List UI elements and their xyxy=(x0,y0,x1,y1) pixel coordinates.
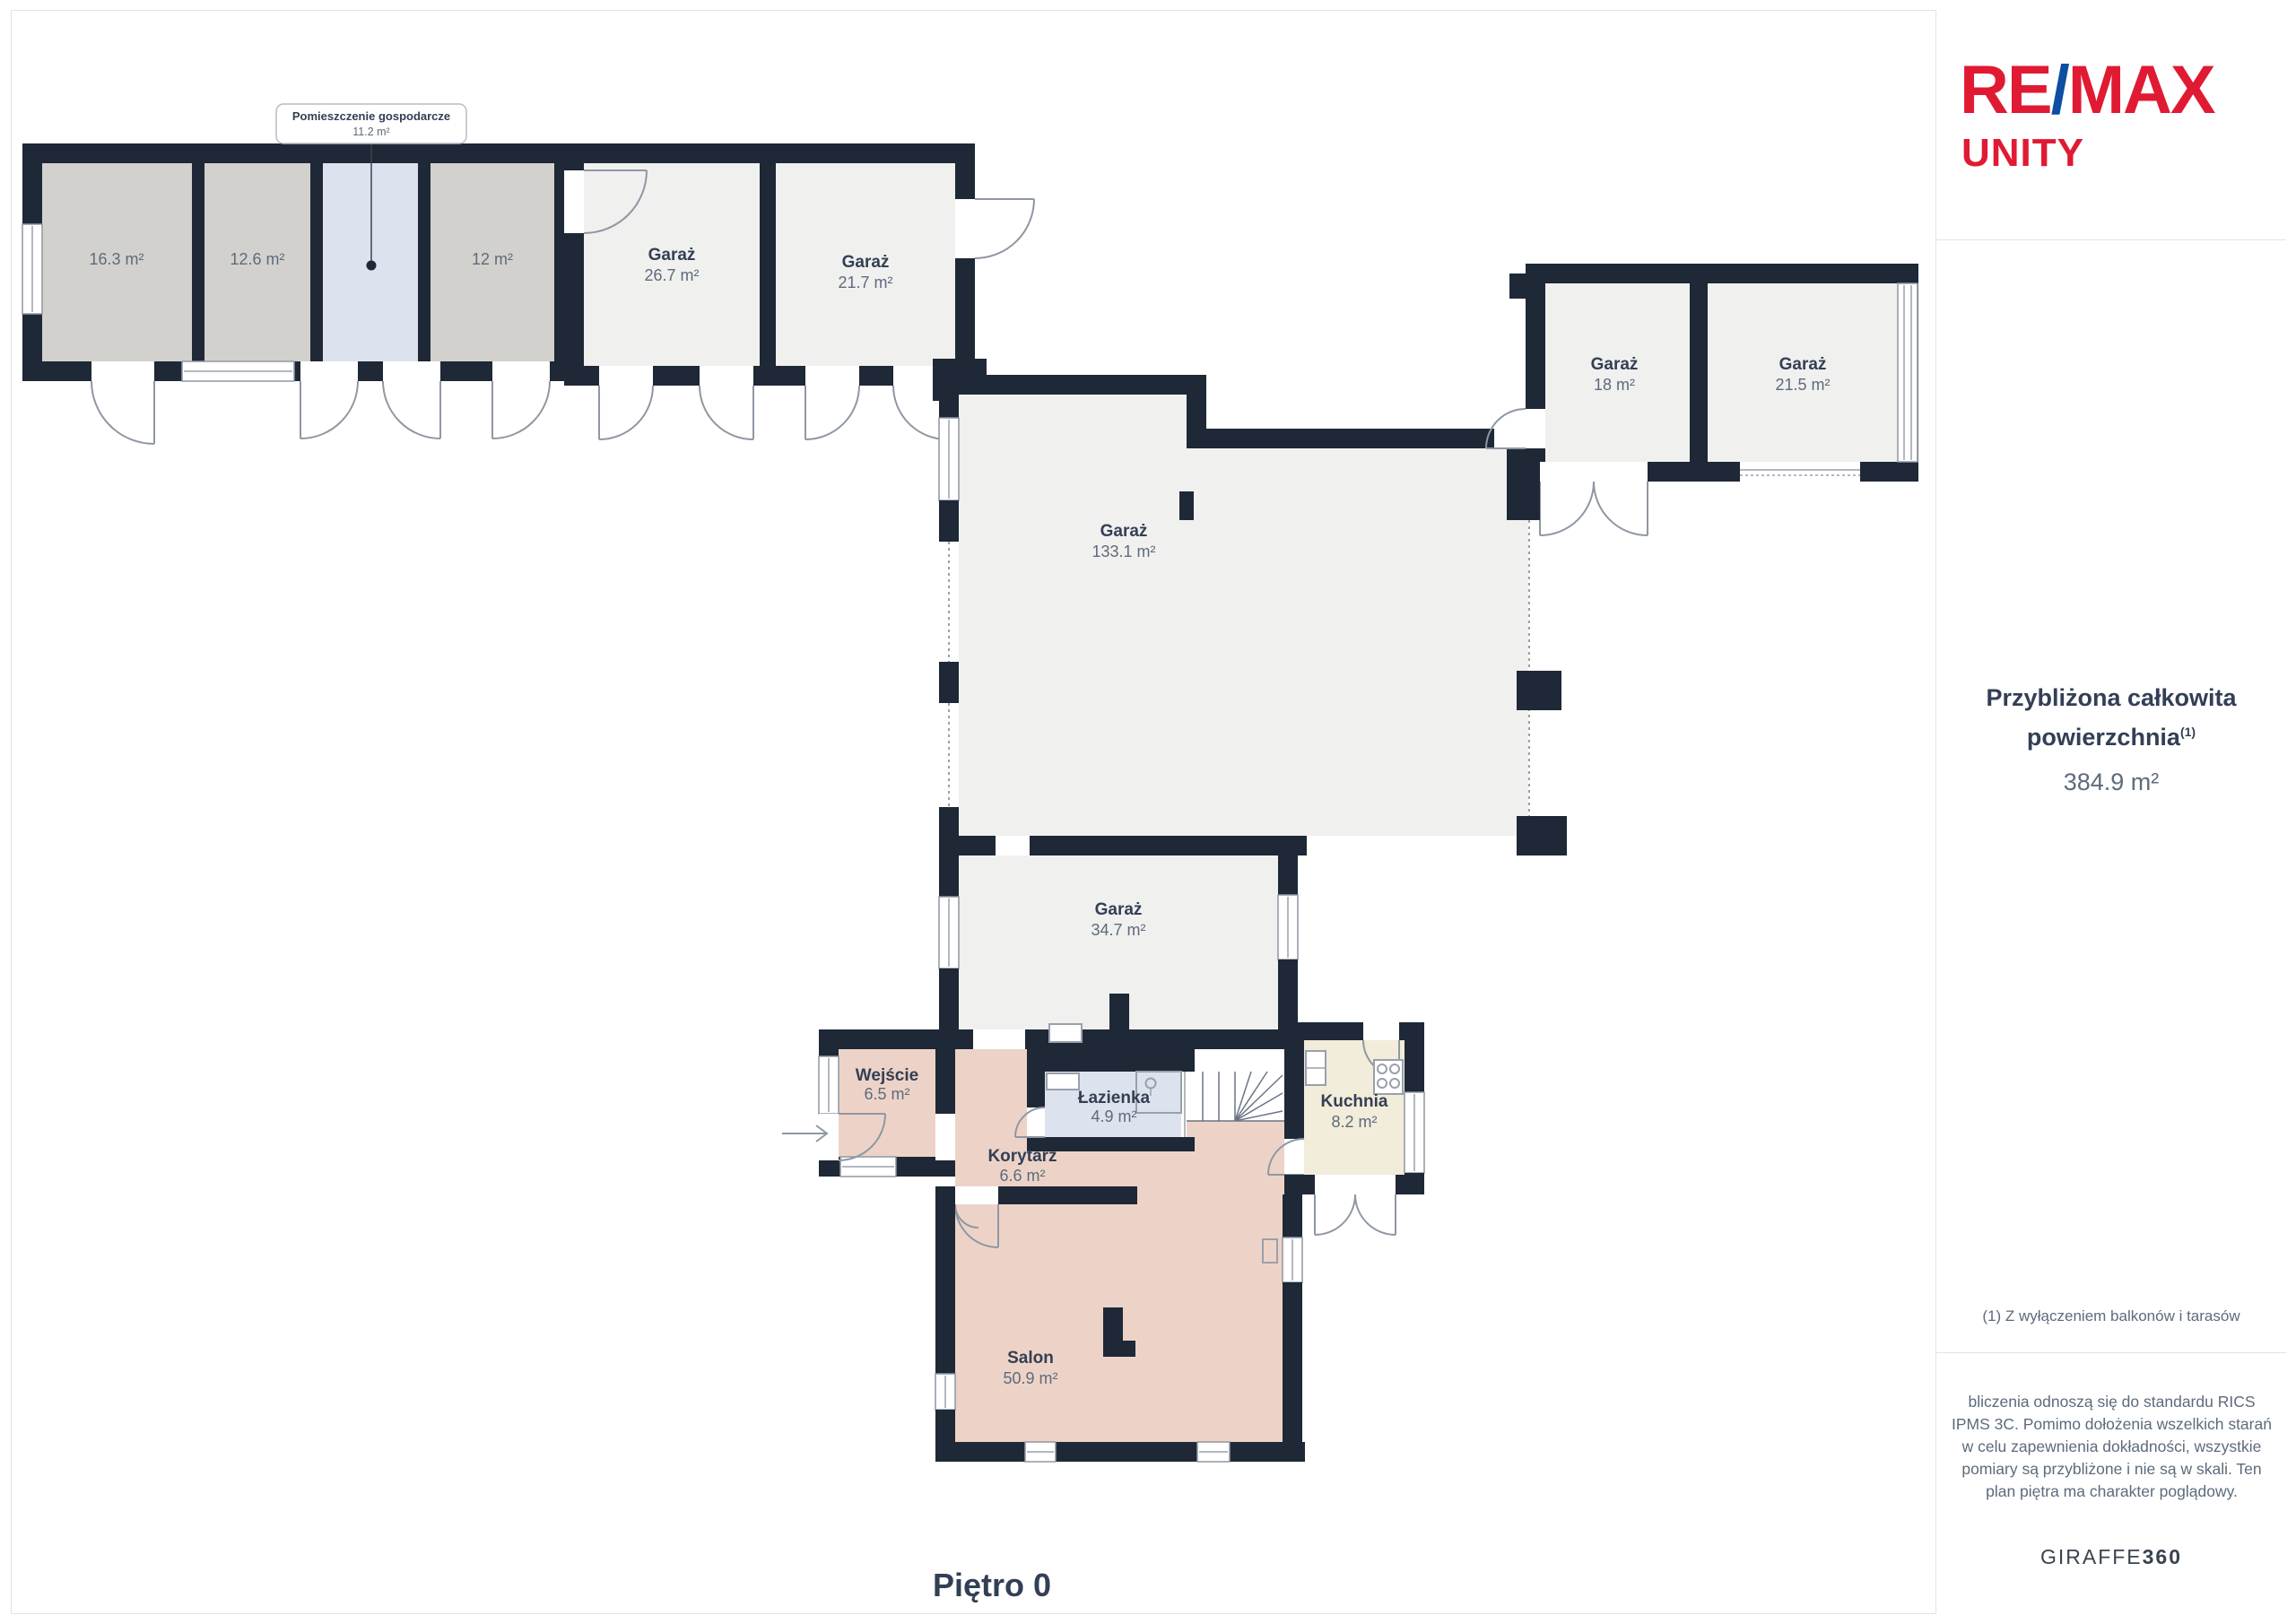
central-garage xyxy=(933,375,1567,890)
label-room-126: 12.6 m² xyxy=(230,250,284,268)
label-garaz347-area: 34.7 m² xyxy=(1091,921,1145,939)
label-garaz217-name: Garaż xyxy=(842,253,890,272)
giraffe-text: GIRAFFE xyxy=(2040,1545,2143,1568)
total-title-superscript: (1) xyxy=(2180,725,2196,739)
callout-area: 11.2 m² xyxy=(352,126,389,138)
label-wejscie-name: Wejście xyxy=(856,1066,918,1085)
label-salon-area: 50.9 m² xyxy=(1003,1369,1057,1387)
label-garaz267-area: 26.7 m² xyxy=(644,266,699,284)
staircase xyxy=(1187,1072,1284,1121)
footnote-section: (1) Z wyłączeniem balkonów i tarasów xyxy=(1936,1281,2286,1353)
sidebar: RE/MAX UNITY Przybliżona całkowita powie… xyxy=(1935,10,2286,1614)
floor-plan: Pomieszczenie gospodarcze 11.2 m² 16.3 m… xyxy=(0,0,1937,1624)
total-area-value: 384.9 m² xyxy=(1936,769,2286,796)
logo-max: MAX xyxy=(2068,52,2214,128)
building-garage-east xyxy=(1509,264,1918,535)
living-room xyxy=(935,1186,1305,1462)
label-room-12: 12 m² xyxy=(472,250,513,268)
label-garaz1331-name: Garaż xyxy=(1100,522,1148,541)
giraffe360-logo: GIRAFFE360 xyxy=(1936,1545,2286,1569)
label-korytarz-area: 6.6 m² xyxy=(999,1167,1045,1185)
label-garaz1331-area: 133.1 m² xyxy=(1091,543,1155,560)
entrance-arrow xyxy=(782,1125,827,1142)
label-garaz215-area: 21.5 m² xyxy=(1775,376,1830,394)
footnote-text: (1) Z wyłączeniem balkonów i tarasów xyxy=(1982,1307,2239,1325)
label-korytarz-name: Korytarz xyxy=(987,1147,1057,1166)
giraffe-360: 360 xyxy=(2143,1545,2182,1568)
remax-unity-logo: RE/MAX UNITY xyxy=(1936,10,2286,240)
label-wejscie-area: 6.5 m² xyxy=(864,1085,909,1103)
label-kuchnia-name: Kuchnia xyxy=(1321,1092,1388,1111)
total-title-line1: Przybliżona całkowita xyxy=(1986,684,2236,711)
total-area-title: Przybliżona całkowita powierzchnia(1) xyxy=(1936,681,2286,754)
remax-wordmark: RE/MAX xyxy=(1960,56,2214,125)
label-garaz267-name: Garaż xyxy=(648,246,696,265)
label-garaz217-area: 21.7 m² xyxy=(838,274,892,291)
logo-slash-icon: / xyxy=(2051,52,2068,128)
label-room-163: 16.3 m² xyxy=(89,250,143,268)
label-garaz347-name: Garaż xyxy=(1095,900,1143,919)
floor-label: Piętro 0 xyxy=(933,1567,1051,1603)
label-garaz18-name: Garaż xyxy=(1591,355,1639,374)
logo-unity: UNITY xyxy=(1961,134,2084,173)
label-lazienka-name: Łazienka xyxy=(1078,1089,1151,1107)
label-kuchnia-area: 8.2 m² xyxy=(1331,1113,1377,1131)
total-area-block: Przybliżona całkowita powierzchnia(1) 38… xyxy=(1936,681,2286,796)
building-storage xyxy=(22,143,574,444)
label-garaz18-area: 18 m² xyxy=(1594,376,1635,394)
callout-name: Pomieszczenie gospodarcze xyxy=(292,109,450,123)
total-title-line2: powierzchnia xyxy=(2027,724,2180,751)
label-lazienka-area: 4.9 m² xyxy=(1091,1107,1136,1125)
logo-re: RE xyxy=(1960,52,2051,128)
label-salon-name: Salon xyxy=(1007,1349,1054,1368)
disclaimer-text: bliczenia odnoszą się do standardu RICS … xyxy=(1949,1391,2274,1503)
label-garaz215-name: Garaż xyxy=(1779,355,1827,374)
